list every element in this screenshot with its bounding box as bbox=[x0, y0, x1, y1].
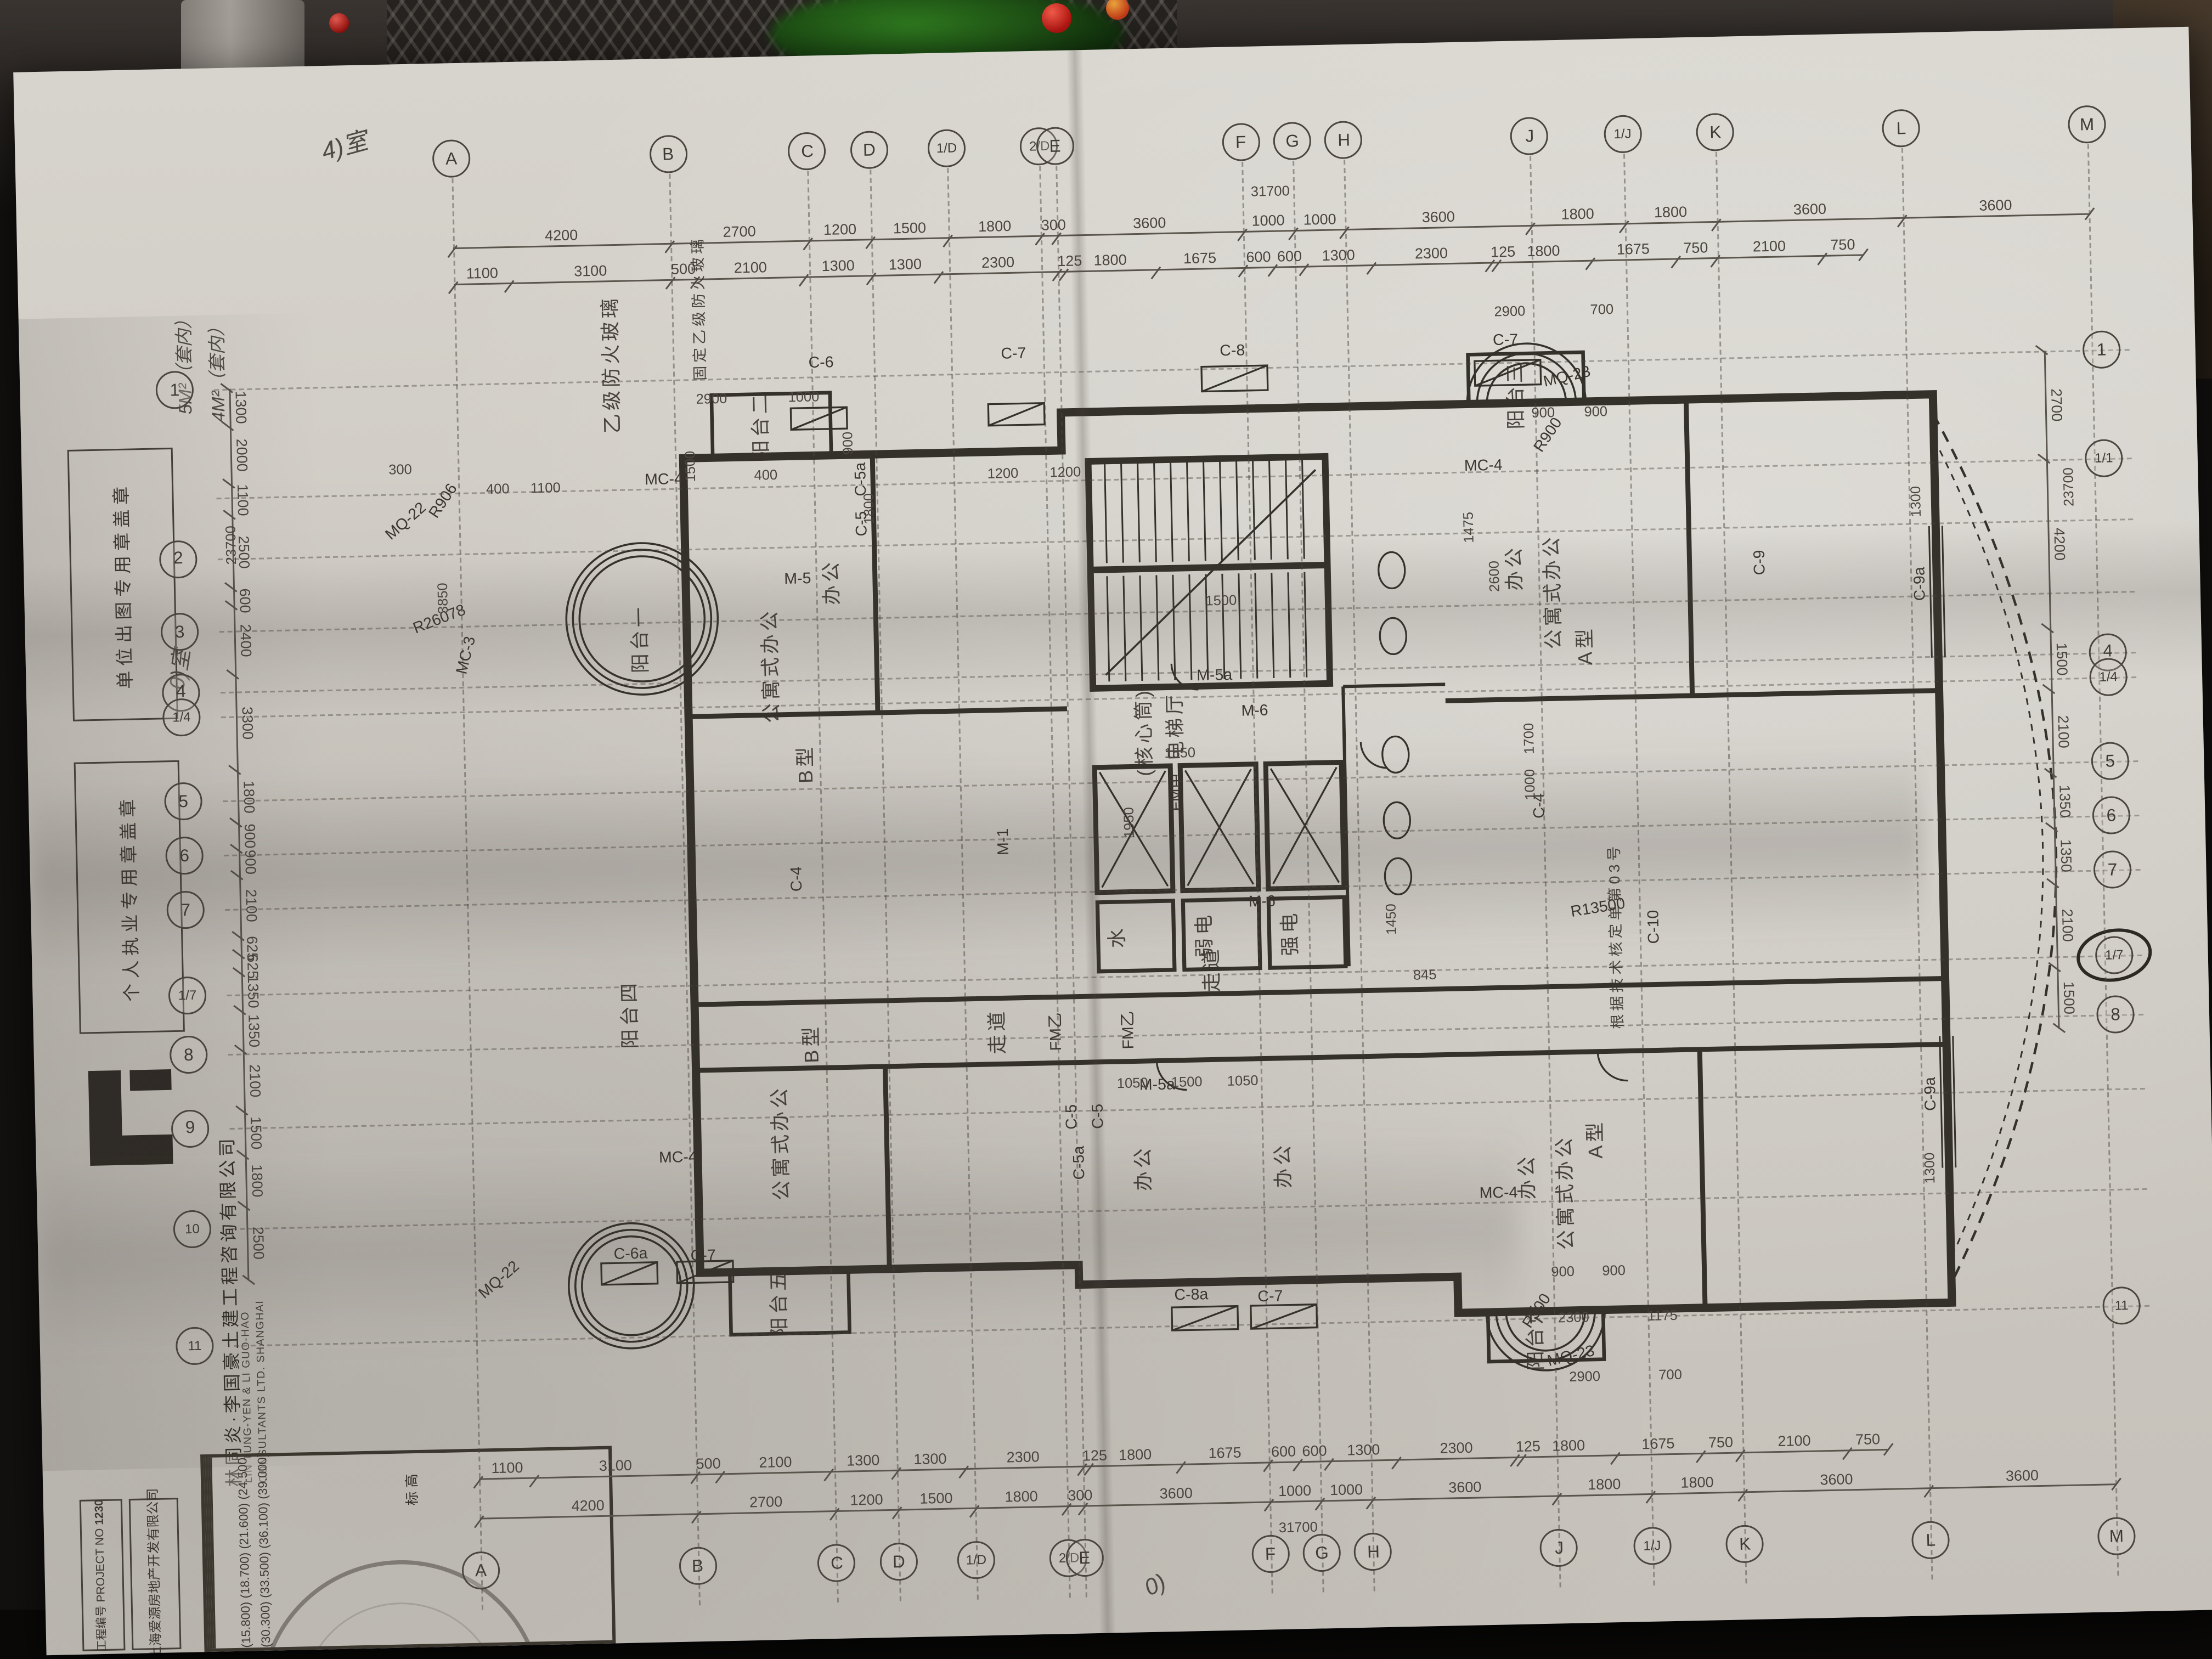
dim-value: 2300 bbox=[1397, 1437, 1516, 1459]
dim-value: 1500 bbox=[2058, 967, 2079, 1028]
handwritten-area-note-2: 4M²（套内） bbox=[203, 318, 232, 422]
inline-dim: 1500 bbox=[681, 450, 698, 482]
dim-value: 750 bbox=[1848, 1429, 1887, 1449]
dim-value: 2100 bbox=[721, 1451, 830, 1473]
inline-dim: 900 bbox=[1584, 403, 1607, 420]
dim-value: 750 bbox=[1823, 234, 1862, 255]
dim-value: 1500 bbox=[871, 217, 949, 239]
room-label-办公: 办公 bbox=[1128, 1145, 1157, 1192]
dim-value: 300 bbox=[1041, 215, 1057, 235]
room-label-公寓式办公: 公寓式办公 bbox=[1537, 534, 1567, 650]
dim-value: 1800 bbox=[1651, 1471, 1744, 1493]
room-label-根据技术核定单第03号: 根据技术核定单第03号 bbox=[1602, 843, 1628, 1029]
red-ornament-icon bbox=[329, 13, 349, 33]
room-label-阳台三: 阳台三 bbox=[1500, 360, 1530, 430]
dim-value: 3300 bbox=[236, 675, 258, 771]
dim-value: 1300 bbox=[830, 1450, 897, 1471]
dim-value: 1000 bbox=[1321, 1480, 1373, 1500]
levels-list-b: (30.300) (33.500) (36.100) (39.000) (30.… bbox=[253, 1449, 273, 1647]
floor-plan-drawing: 单位出图专用章盖章 个人执业专用章盖章 林同炎·李国豪土建工程咨询有限公司 LI… bbox=[13, 27, 2212, 1655]
inline-dim: 3850 bbox=[434, 583, 451, 614]
room-label-办公: 办公 bbox=[1268, 1142, 1297, 1188]
room-label-乙级防火玻璃: 乙级防火玻璃 bbox=[595, 295, 625, 434]
dim-value: 1000 bbox=[1242, 210, 1294, 231]
dim-value: 1500 bbox=[2051, 629, 2072, 690]
dim-value: 1800 bbox=[239, 771, 259, 823]
tag-C-7: C-7 bbox=[1493, 331, 1519, 350]
dim-value: 3600 bbox=[1717, 198, 1903, 221]
inline-dim: 900 bbox=[1531, 404, 1555, 421]
project-no-value: 1230 bbox=[94, 1499, 106, 1525]
inline-dim: 900 bbox=[1602, 1262, 1626, 1279]
levels-label: 标 高 bbox=[400, 1474, 421, 1506]
tag-C-5a: C-5a bbox=[1070, 1145, 1089, 1180]
inline-dim: 2900 bbox=[696, 390, 727, 407]
dim-value: 1350 bbox=[2056, 828, 2076, 883]
tag-C-7: C-7 bbox=[1257, 1288, 1283, 1306]
room-label-阳台五: 阳台五 bbox=[764, 1268, 793, 1338]
room-label-公寓式办公: 公寓式办公 bbox=[754, 608, 785, 724]
dim-value: 500 bbox=[695, 1453, 721, 1474]
inline-dim: 1475 bbox=[1460, 512, 1477, 543]
photo-of-floor-plan: 单位出图专用章盖章 个人执业专用章盖章 林同炎·李国豪土建工程咨询有限公司 LI… bbox=[0, 0, 2212, 1659]
tag-C-9a: C-9a bbox=[1911, 567, 1929, 601]
room-label-B型: B型 bbox=[796, 1023, 825, 1063]
dim-value: 4200 bbox=[453, 223, 670, 247]
inline-dim: 400 bbox=[486, 480, 510, 497]
tag-C-7: C-7 bbox=[1001, 345, 1026, 364]
inline-dim: 23700 bbox=[222, 526, 239, 565]
tag-M-5a: M-5a bbox=[1197, 667, 1233, 685]
tag-C-10: C-10 bbox=[1645, 910, 1663, 944]
tag-C-8: C-8 bbox=[1220, 342, 1245, 360]
inline-dim: 2900 bbox=[1569, 1368, 1600, 1385]
room-label-(核心筒): (核心筒) bbox=[1128, 687, 1158, 776]
inline-dim: 2300 bbox=[1558, 1308, 1589, 1325]
levels-list-a: (15.800) (18.700) (21.600) (24.500) (27.… bbox=[234, 1449, 253, 1648]
dim-value: 2300 bbox=[1372, 242, 1491, 265]
room-label-强电: 强电 bbox=[1274, 910, 1304, 956]
dim-value: 1000 bbox=[1294, 209, 1346, 230]
dim-value: 1675 bbox=[1182, 1442, 1268, 1464]
dim-value: 3600 bbox=[1929, 1464, 2115, 1487]
dim-value: 3600 bbox=[1903, 194, 2089, 217]
tag-FM乙: FM乙 bbox=[1114, 1011, 1138, 1049]
inline-dim: 1050 bbox=[1227, 1072, 1258, 1089]
inline-dim: 2900 bbox=[1494, 302, 1525, 319]
dim-value: 2100 bbox=[2057, 883, 2078, 968]
dim-value: 2100 bbox=[241, 875, 262, 936]
dim-value: 1800 bbox=[1088, 1444, 1182, 1466]
inline-dim: 1050 bbox=[1117, 1074, 1148, 1091]
dim-value: 2100 bbox=[245, 1050, 266, 1111]
dim-value: 2500 bbox=[248, 1206, 269, 1279]
dim-value: 900 bbox=[240, 849, 261, 875]
tag-C-9: C-9 bbox=[1751, 550, 1770, 575]
inline-dim: 23700 bbox=[2059, 467, 2076, 507]
tag-M-6: M-6 bbox=[1241, 702, 1268, 721]
inline-dim: 1550 bbox=[1164, 744, 1195, 761]
room-label-B型: B型 bbox=[791, 743, 819, 783]
dim-value: 750 bbox=[1701, 1432, 1740, 1452]
tag-MC-4: MC-4 bbox=[1464, 457, 1503, 476]
tag-FM乙: FM乙 bbox=[1042, 1012, 1066, 1051]
dim-value: 2100 bbox=[2053, 689, 2074, 774]
inline-dim: 700 bbox=[1590, 301, 1613, 318]
inline-dim: 1450 bbox=[1383, 904, 1400, 935]
dim-value: 1100 bbox=[478, 1457, 535, 1478]
tag-C-5: C-5 bbox=[1063, 1104, 1082, 1130]
dim-value: 1100 bbox=[454, 263, 511, 284]
tag-C-5a: C-5a bbox=[852, 462, 871, 496]
dim-value: 600 bbox=[1299, 1441, 1330, 1461]
tag-C-7: C-7 bbox=[690, 1247, 716, 1266]
room-label-固定乙级防火玻璃: 固定乙级防火玻璃 bbox=[686, 235, 710, 381]
inline-dim: 1100 bbox=[531, 479, 561, 496]
room-label-走道: 走道 bbox=[982, 1008, 1011, 1054]
dim-value: 125 bbox=[1515, 1437, 1522, 1457]
dim-value: 1350 bbox=[2055, 774, 2075, 829]
inline-dim: 1300 bbox=[1907, 486, 1924, 517]
inline-dim: 1950 bbox=[1120, 807, 1137, 838]
project-no-label-cn: 工程编号 bbox=[96, 1605, 109, 1651]
inline-dim: 2600 bbox=[1485, 561, 1502, 592]
tag-MC-4: MC-4 bbox=[659, 1149, 697, 1167]
dim-value: 600 bbox=[235, 588, 255, 606]
inline-dim: 700 bbox=[1658, 1366, 1682, 1383]
dim-value: 4200 bbox=[479, 1493, 697, 1517]
dim-value: 2000 bbox=[232, 426, 252, 484]
inline-dim: 900 bbox=[839, 432, 856, 455]
dim-value: 1675 bbox=[1590, 238, 1677, 259]
dim-value: 1300 bbox=[1305, 245, 1372, 266]
tag-MC-4: MC-4 bbox=[1479, 1184, 1517, 1203]
dim-value: 3600 bbox=[1372, 1475, 1558, 1499]
dim-value: 1200 bbox=[809, 219, 871, 240]
inline-dim: 1175 bbox=[1647, 1307, 1678, 1324]
tag-FM甲: FM甲 bbox=[1162, 773, 1186, 812]
dim-value: 600 bbox=[1268, 1441, 1299, 1462]
dim-value: 1300 bbox=[804, 255, 872, 276]
tag-MC-4: MC-4 bbox=[645, 471, 683, 489]
inline-dim: 845 bbox=[1413, 966, 1437, 983]
dim-value: 1350 bbox=[243, 972, 263, 1012]
dim-value: 3600 bbox=[1083, 1481, 1269, 1505]
room-label-办公: 办公 bbox=[816, 558, 845, 605]
dim-value: 3600 bbox=[1345, 205, 1531, 229]
inline-dim: 1000 bbox=[1521, 769, 1538, 800]
dim-value: 625 bbox=[242, 936, 262, 955]
tag-M-6: M-6 bbox=[1248, 893, 1276, 911]
dim-value: 3600 bbox=[1057, 211, 1243, 235]
dim-value: 1800 bbox=[1624, 201, 1717, 223]
dim-value: 2100 bbox=[1740, 1430, 1848, 1452]
tag-C-9a: C-9a bbox=[1922, 1077, 1940, 1111]
dim-value: 625 bbox=[242, 954, 263, 973]
room-label-阳台二: 阳台二 bbox=[745, 391, 775, 460]
dim-value: 125 bbox=[1491, 242, 1497, 262]
red-ornament-icon bbox=[1042, 3, 1071, 33]
dim-value: 1350 bbox=[244, 1011, 264, 1051]
tag-M-1: M-1 bbox=[995, 828, 1013, 855]
dim-value: 1300 bbox=[896, 1448, 964, 1470]
tag-C-5: C-5 bbox=[1090, 1104, 1108, 1130]
client-name: 上海爱源房地产开发有限公司 bbox=[145, 1488, 165, 1655]
inline-dim: 300 bbox=[388, 461, 412, 478]
dim-value: 1500 bbox=[246, 1111, 267, 1155]
dim-value: 1200 bbox=[836, 1489, 898, 1510]
inline-dim: 1800 bbox=[860, 493, 877, 524]
room-label-A型: A型 bbox=[1580, 1119, 1609, 1159]
dim-value: 1800 bbox=[247, 1154, 268, 1207]
room-label-公寓式办公: 公寓式办公 bbox=[1549, 1135, 1579, 1250]
dim-value: 3100 bbox=[510, 259, 670, 283]
dim-value: 1675 bbox=[1156, 247, 1243, 269]
inline-dim: 1500 bbox=[1205, 591, 1237, 608]
dim-value: 1300 bbox=[230, 388, 251, 426]
room-label-水: 水 bbox=[1102, 925, 1131, 949]
dim-value: 2300 bbox=[939, 251, 1058, 274]
blueprint-paper: 单位出图专用章盖章 个人执业专用章盖章 林同炎·李国豪土建工程咨询有限公司 LI… bbox=[13, 27, 2212, 1655]
room-label-公寓式办公: 公寓式办公 bbox=[765, 1085, 795, 1200]
dim-value: 300 bbox=[1068, 1486, 1084, 1506]
dim-value: 1100 bbox=[233, 484, 253, 516]
dim-value: 3600 bbox=[1743, 1468, 1929, 1491]
dim-value: 2300 bbox=[963, 1446, 1082, 1469]
dim-value: 1800 bbox=[1497, 240, 1590, 262]
inline-dim: 31700 bbox=[1278, 1519, 1318, 1536]
dim-value: 1000 bbox=[1269, 1481, 1321, 1502]
dim-value: 3100 bbox=[535, 1454, 696, 1477]
dim-value: 1500 bbox=[898, 1488, 975, 1509]
inline-dim: 1500 bbox=[1171, 1073, 1203, 1090]
project-no-box: 工程编号 PROJECT NO 1230 bbox=[80, 1499, 126, 1651]
dim-value: 1800 bbox=[1531, 203, 1624, 225]
inline-dim: 1300 bbox=[1921, 1152, 1938, 1183]
dim-value: 600 bbox=[1243, 247, 1274, 267]
dim-value: 125 bbox=[1057, 251, 1064, 271]
dim-value: 1300 bbox=[871, 254, 939, 275]
dim-value: 600 bbox=[1274, 246, 1305, 267]
tag-M-5: M-5 bbox=[784, 570, 811, 589]
tag-C-4: C-4 bbox=[788, 866, 806, 892]
tag-C-6a: C-6a bbox=[613, 1245, 647, 1264]
dim-value: 2100 bbox=[696, 257, 805, 279]
tag-C-8a: C-8a bbox=[1174, 1286, 1208, 1305]
room-label-阳台四: 阳台四 bbox=[614, 979, 644, 1049]
inline-dim: 1200 bbox=[1049, 463, 1081, 480]
inline-dim: 900 bbox=[1551, 1263, 1575, 1280]
inline-dim: 1700 bbox=[1520, 723, 1537, 754]
dim-value: 750 bbox=[1676, 238, 1715, 258]
dim-value: 2100 bbox=[1715, 235, 1824, 257]
project-no-label-en: PROJECT NO bbox=[94, 1528, 108, 1602]
dim-value: 2700 bbox=[696, 1491, 836, 1513]
tag-C-6: C-6 bbox=[808, 354, 834, 373]
inline-dim: 31700 bbox=[1250, 182, 1290, 199]
room-label-办公: 办公 bbox=[1499, 544, 1528, 591]
dim-value: 1800 bbox=[975, 1486, 1068, 1508]
dim-value: 1675 bbox=[1615, 1433, 1701, 1454]
dim-value: 2700 bbox=[2046, 351, 2068, 460]
dim-value: 1800 bbox=[948, 216, 1041, 238]
title-block-levels-cell: 标 高 (15.800) (18.700) (21.600) (24.500) … bbox=[212, 1449, 612, 1649]
unit-seal-label: 单位出图专用章盖章 bbox=[108, 481, 138, 689]
dim-value: 125 bbox=[1082, 1446, 1089, 1465]
dim-value: 1800 bbox=[1558, 1474, 1651, 1496]
room-label-弱电: 弱电 bbox=[1189, 911, 1218, 958]
inline-dim: 1000 bbox=[788, 388, 819, 405]
inline-dim: 400 bbox=[754, 466, 777, 483]
client-box: 上海爱源房地产开发有限公司 bbox=[129, 1498, 182, 1650]
room-label-阳台一: 阳台一 bbox=[624, 604, 654, 674]
personal-seal-label: 个人执业专用章盖章 bbox=[114, 793, 145, 1001]
dim-value: 1300 bbox=[1330, 1440, 1397, 1461]
room-label-A型: A型 bbox=[1570, 625, 1598, 665]
dim-value: 1800 bbox=[1064, 249, 1157, 271]
dim-value: 900 bbox=[240, 823, 260, 849]
dim-value: 2400 bbox=[235, 606, 257, 675]
inline-dim: 1200 bbox=[987, 465, 1018, 482]
dim-value: 1800 bbox=[1522, 1435, 1615, 1457]
